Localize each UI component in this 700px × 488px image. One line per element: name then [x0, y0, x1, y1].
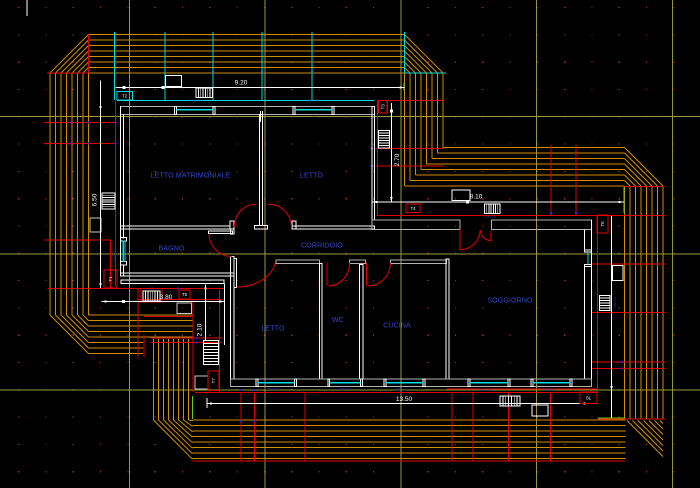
- svg-text:1.20x1.50: 1.20x1.50: [540, 388, 554, 392]
- svg-text:1.20x1.50: 1.20x1.50: [482, 215, 496, 219]
- svg-text:T6: T6: [600, 221, 605, 227]
- svg-text:T1: T1: [108, 276, 113, 282]
- svg-text:SL: SL: [586, 395, 592, 400]
- svg-text:1.20x1.50: 1.20x1.50: [264, 387, 278, 391]
- svg-text:T7: T7: [211, 378, 216, 384]
- svg-text:3.80: 3.80: [160, 294, 173, 301]
- svg-text:1.20x1.50: 1.20x1.50: [477, 388, 491, 392]
- svg-text:80x2.50: 80x2.50: [113, 250, 117, 261]
- svg-text:T2: T2: [122, 93, 128, 98]
- svg-text:BAGNO: BAGNO: [158, 246, 184, 253]
- svg-text:WC: WC: [332, 317, 344, 324]
- svg-text:T4: T4: [410, 206, 416, 211]
- svg-text:8.10: 8.10: [470, 194, 483, 201]
- svg-text:LETTO: LETTO: [300, 173, 324, 180]
- svg-text:LETTO: LETTO: [261, 326, 285, 333]
- svg-text:9.20: 9.20: [235, 80, 248, 87]
- svg-text:1.20x1.50: 1.20x1.50: [187, 99, 201, 103]
- svg-text:SOGGIORNO: SOGGIORNO: [487, 298, 533, 305]
- svg-text:6.50: 6.50: [92, 193, 99, 206]
- svg-text:13.50: 13.50: [396, 396, 413, 403]
- svg-text:LETTO MATRIMONIALE: LETTO MATRIMONIALE: [151, 173, 231, 180]
- svg-text:2.70: 2.70: [394, 153, 401, 166]
- svg-text:CUCINA: CUCINA: [383, 323, 411, 330]
- svg-text:80x2.50: 80x2.50: [613, 297, 617, 308]
- svg-text:1.20x1.50: 1.20x1.50: [305, 99, 319, 103]
- svg-text:1.20x1.50: 1.20x1.50: [337, 387, 351, 391]
- svg-text:2.10: 2.10: [197, 323, 204, 336]
- svg-text:T3: T3: [380, 104, 385, 110]
- svg-text:CORRIDOIO: CORRIDOIO: [301, 243, 343, 250]
- svg-text:T5: T5: [182, 292, 188, 297]
- svg-text:1.20x1.50: 1.20x1.50: [393, 388, 407, 392]
